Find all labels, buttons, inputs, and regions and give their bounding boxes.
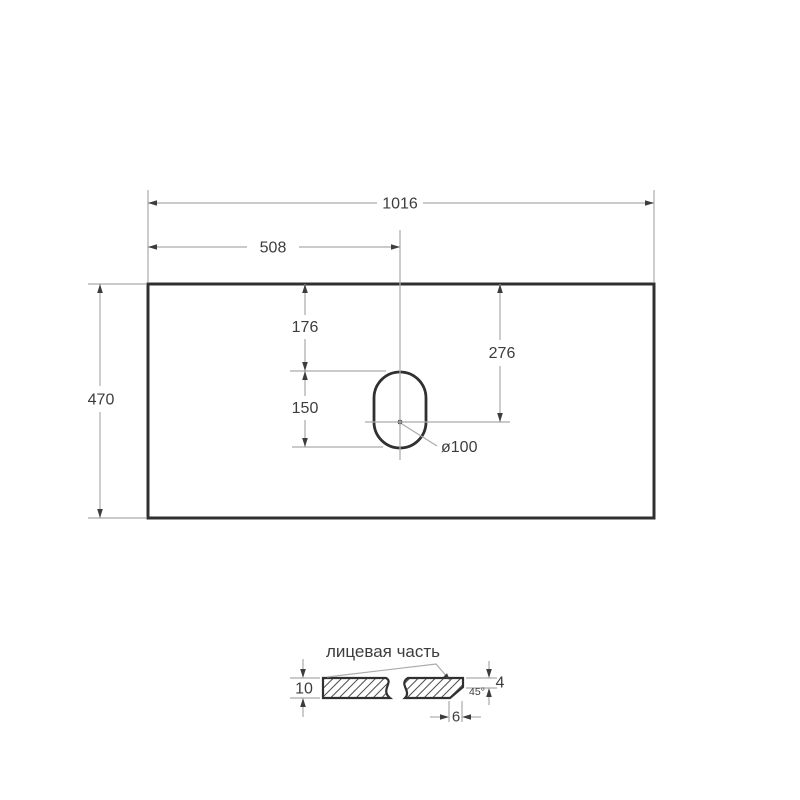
arrowhead-top: [300, 669, 306, 678]
dim-hole-diameter: ø100: [402, 424, 478, 456]
dim-overall-width-label: 1016: [382, 196, 418, 213]
arrowhead-left: [440, 714, 449, 720]
dim-chamfer-width-label: 6: [452, 709, 460, 726]
leader-line: [402, 424, 437, 446]
section-left-piece: [323, 678, 390, 698]
top-view: 1016 508 470 176: [88, 190, 654, 518]
dim-hole-height: 150: [292, 371, 319, 447]
face-side-callout: лицевая часть: [326, 642, 450, 680]
dim-half-width-label: 508: [260, 240, 287, 257]
dim-edge-height: 4: [466, 661, 505, 705]
dim-hole-top-offset-label: 176: [292, 319, 319, 336]
dim-thickness-label: 10: [295, 681, 313, 698]
section-view: лицевая часть 10 4 45°: [290, 642, 505, 726]
arrowhead-bottom: [302, 438, 308, 447]
dim-hole-center-offset-label: 276: [489, 345, 516, 362]
section-right-piece: [404, 678, 463, 698]
technical-drawing: 1016 508 470 176: [0, 0, 800, 800]
arrowhead-right: [645, 200, 654, 206]
dim-overall-width: 1016: [148, 196, 654, 213]
dim-thickness: 10: [290, 659, 320, 717]
arrowhead-bottom: [300, 698, 306, 707]
countertop-outline: [148, 284, 654, 518]
dim-half-width: 508: [148, 240, 400, 257]
face-side-label: лицевая часть: [326, 642, 440, 661]
arrowhead-right: [462, 714, 471, 720]
dim-depth: 470: [88, 284, 115, 518]
dim-hole-diameter-label: ø100: [441, 439, 478, 456]
arrowhead-bottom: [497, 413, 503, 422]
face-side-leader: [327, 664, 449, 679]
arrowhead-bottom: [486, 688, 492, 697]
arrowhead-bottom: [97, 509, 103, 518]
dim-chamfer-width: 6: [430, 701, 481, 726]
dim-depth-label: 470: [88, 392, 115, 409]
arrowhead-right: [391, 244, 400, 250]
arrowhead-bottom: [302, 362, 308, 371]
dim-hole-center-offset: 276: [489, 284, 516, 422]
arrowhead-top: [97, 284, 103, 293]
arrowhead-left: [148, 244, 157, 250]
dim-hole-top-offset: 176: [292, 284, 319, 371]
arrowhead-left: [148, 200, 157, 206]
arrowhead-top: [302, 371, 308, 380]
dim-hole-height-label: 150: [292, 400, 319, 417]
dim-edge-height-label: 4: [496, 675, 505, 692]
arrowhead-top: [486, 669, 492, 678]
chamfer-angle-label: 45°: [469, 686, 485, 698]
